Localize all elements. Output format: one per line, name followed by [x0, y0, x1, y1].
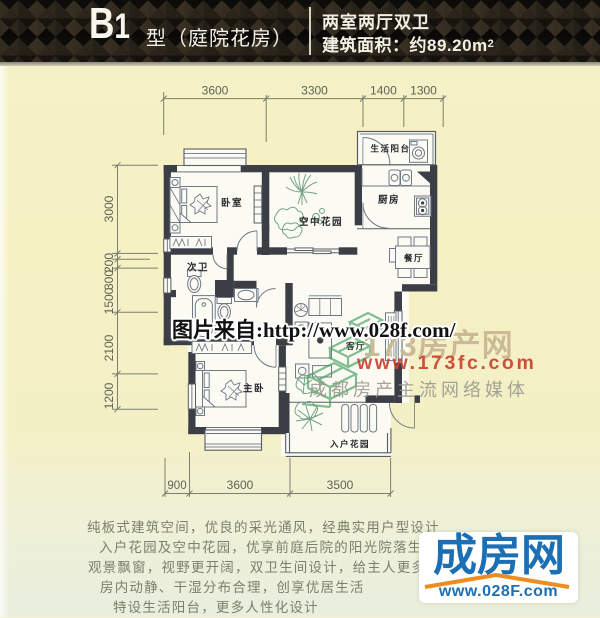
svg-text:次卫: 次卫: [187, 262, 209, 274]
svg-text:1300: 1300: [410, 84, 437, 98]
svg-text:3300: 3300: [301, 84, 328, 98]
svg-text:卧室: 卧室: [221, 197, 243, 209]
svg-text:餐厅: 餐厅: [403, 253, 424, 263]
svg-text:3600: 3600: [202, 84, 229, 98]
svg-text:1200: 1200: [102, 382, 116, 409]
svg-text:900: 900: [167, 480, 186, 492]
svg-text:3500: 3500: [327, 478, 354, 492]
svg-text:3600: 3600: [227, 478, 254, 492]
svg-text:300: 300: [102, 270, 116, 290]
svg-text:空中花园: 空中花园: [299, 216, 343, 228]
svg-text:2100: 2100: [102, 334, 116, 361]
svg-text:主卧: 主卧: [243, 383, 265, 395]
svg-text:1400: 1400: [370, 84, 397, 98]
svg-text:厨房: 厨房: [378, 194, 400, 206]
svg-text:1500: 1500: [102, 287, 116, 314]
svg-text:3000: 3000: [102, 195, 116, 222]
svg-text:生活阳台: 生活阳台: [370, 144, 410, 154]
svg-text:200: 200: [102, 253, 116, 273]
svg-text:入户花园: 入户花园: [329, 439, 370, 449]
